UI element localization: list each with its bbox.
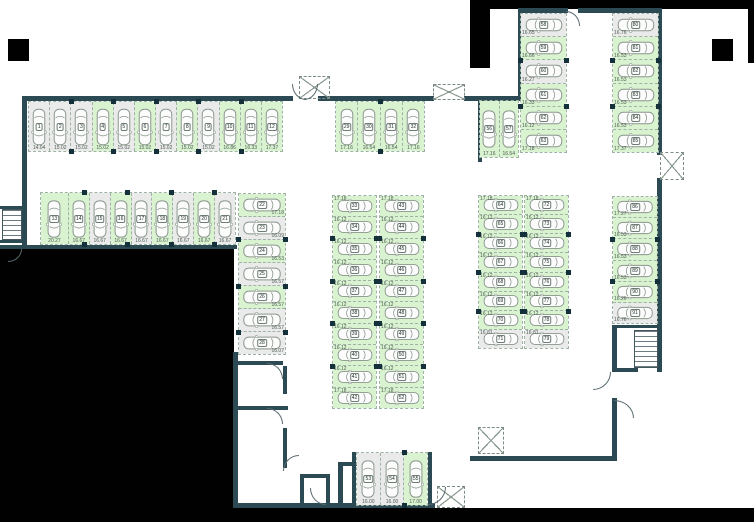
stall-area-label: 16.12 [381,217,394,223]
parking-stall-64[interactable]: 6417.18 [479,196,522,215]
stall-number: 38 [350,309,360,317]
stall-number: 27 [257,316,267,324]
stall-area-label: 16.12 [334,239,347,245]
parking-stall-29[interactable]: 2917.16 [336,102,358,151]
parking-stall-84[interactable]: 8416.53 [613,107,658,130]
stall-area-label: 16.12 [522,123,535,129]
column-pillar [522,270,527,275]
elevator-shaft [660,152,684,180]
stall-area-label: 17.18 [271,210,284,216]
outside-area [748,8,754,63]
parking-stall-62[interactable]: 6216.12 [521,107,566,130]
wall [612,325,660,328]
stall-number: 84 [631,114,641,122]
stall-number: 41 [350,373,360,381]
wall [233,361,283,365]
stall-number: 60 [539,67,549,75]
stall-area-label: 16.12 [526,253,539,259]
parking-stall-38[interactable]: 3816.12 [333,302,376,323]
parking-stall-56[interactable]: 5617.16 [480,101,500,157]
stall-number: 32 [409,123,419,131]
stall-group-col-wing-right: 8016.768116.538216.538316.538416.538517.… [612,13,659,153]
column-pillar [656,58,661,63]
parking-stall-39[interactable]: 3916.12 [333,324,376,345]
stall-number: 16 [116,215,126,223]
parking-stall-5: 515.02 [114,102,135,151]
column-pillar [610,279,615,284]
stall-area-label: 16.86 [220,145,240,151]
parking-stall-40[interactable]: 4016.12 [333,345,376,366]
stall-number: 80 [631,21,641,29]
parking-stall-42[interactable]: 4217.18 [333,388,376,408]
stall-number: 58 [539,21,549,29]
stall-area-label: 17.16 [403,145,424,151]
door-swing [267,363,283,379]
column-pillar [330,236,335,241]
parking-stall-31[interactable]: 3116.54 [381,102,403,151]
parking-stall-17: 1716.67 [132,193,153,244]
stall-area-label: 16.67 [90,238,110,244]
stall-area-label: 17.18 [522,146,535,152]
parking-stall-22[interactable]: 2217.18 [239,194,285,217]
stall-number: 57 [504,125,514,133]
stall-area-label: 16.54 [500,151,519,157]
stall-number: 61 [539,91,549,99]
parking-stall-80: 8016.76 [613,14,658,37]
stall-number: 30 [364,123,374,131]
column-pillar [377,364,382,369]
stall-group-row-second-left: 1320.271416.671516.671616.671716.671816.… [40,192,236,245]
stall-number: 14 [74,215,84,223]
stairs [2,209,22,240]
stall-area-label: 16.27 [522,77,535,83]
parking-stall-74[interactable]: 7416.12 [525,234,568,253]
stall-number: 65 [496,220,506,228]
stall-number: 5 [120,123,127,131]
stall-number: 76 [542,278,552,286]
stall-area-label: 17.18 [526,196,539,202]
stall-number: 78 [542,316,552,324]
stall-area-label: 16.12 [334,366,347,372]
stall-area-label: 16.12 [526,234,539,240]
stall-number: 39 [350,330,360,338]
parking-stall-59[interactable]: 5916.66 [521,37,566,60]
parking-stall-49[interactable]: 4916.12 [380,324,423,345]
parking-stall-75[interactable]: 7516.12 [525,253,568,272]
stall-number: 4 [99,123,106,131]
parking-stall-13[interactable]: 1320.27 [41,193,69,244]
stall-number: 49 [397,330,407,338]
stall-group-col-left: 2217.182316.092416.532516.572616.572716.… [238,193,286,355]
column-pillar [239,99,244,104]
column-pillar [236,237,241,242]
stall-number: 62 [539,114,549,122]
column-pillar [566,309,571,314]
stall-group-row-bottom-center: 5316.005416.005517.00 [356,452,428,506]
column-pillar [330,279,335,284]
stall-area-label: 16.53 [614,275,627,281]
stall-number: 69 [496,297,506,305]
column-pillar [518,58,523,63]
parking-stall-44[interactable]: 4416.12 [380,217,423,238]
stall-number: 2 [57,123,64,131]
parking-stall-20[interactable]: 2016.67 [194,193,215,244]
stall-area-label: 16.12 [526,311,539,317]
stall-number: 46 [397,266,407,274]
parking-stall-36[interactable]: 3616.12 [333,260,376,281]
column-pillar [212,190,217,195]
stall-number: 77 [542,297,552,305]
stall-number: 51 [397,373,407,381]
wall [338,462,343,506]
parking-stall-69[interactable]: 6916.12 [479,292,522,311]
parking-stall-11[interactable]: 1116.33 [241,102,262,151]
parking-stall-87[interactable]: 8716.53 [613,218,657,239]
stall-area-label: 16.76 [614,30,627,36]
parking-stall-85[interactable]: 8517.37 [613,130,658,152]
stall-area-label: 15.02 [156,145,176,151]
stall-number: 22 [257,201,267,209]
column-pillar [169,190,174,195]
stall-number: 15 [95,215,105,223]
stall-number: 79 [542,335,552,343]
parking-stall-82[interactable]: 8216.53 [613,60,658,83]
parking-stall-33[interactable]: 3317.18 [333,196,376,217]
stall-number: 72 [542,201,552,209]
wall [283,366,287,394]
stall-number: 47 [397,287,407,295]
parking-stall-79: 7916.81 [525,330,568,348]
stall-area-label: 17.16 [336,145,357,151]
column-pillar [566,232,571,237]
stall-area-label: 16.07 [271,348,284,354]
stall-number: 26 [257,293,267,301]
stall-area-label: 16.00 [357,499,380,505]
stall-area-label: 16.81 [480,330,493,336]
parking-stall-3: 315.02 [71,102,92,151]
parking-stall-16[interactable]: 1616.67 [111,193,132,244]
column-pillar [421,236,426,241]
stall-number: 54 [387,475,397,483]
stall-number: 66 [496,239,506,247]
parking-stall-76[interactable]: 7616.12 [525,273,568,292]
outside-area [8,39,29,61]
parking-stall-12[interactable]: 1217.37 [262,102,282,151]
stall-number: 11 [246,123,255,131]
stall-area-label: 15.02 [93,145,113,151]
stall-number: 40 [350,351,360,359]
stall-area-label: 17.18 [480,196,493,202]
stall-number: 35 [350,245,360,253]
parking-stall-9: 915.02 [198,102,219,151]
stall-number: 24 [257,247,267,255]
stall-area-label: 16.12 [381,281,394,287]
stall-group-col-mid-b: 4317.184416.124516.124616.124716.124816.… [379,195,424,409]
stall-area-label: 16.12 [526,273,539,279]
parking-stall-52[interactable]: 5217.18 [380,388,423,408]
stall-number: 86 [630,203,640,211]
stall-area-label: 16.12 [480,273,493,279]
stall-number: 36 [350,266,360,274]
stall-area-label: 16.12 [334,302,347,308]
column-pillar [330,321,335,326]
parking-stall-83[interactable]: 8316.53 [613,84,658,107]
stall-number: 42 [350,394,360,402]
parking-stall-6[interactable]: 615.02 [135,102,156,151]
stall-area-label: 16.12 [381,366,394,372]
stall-number: 44 [397,223,407,231]
stall-group-col-right-a: 6417.186516.126616.126716.126816.126916.… [478,195,523,349]
stall-area-label: 16.53 [614,53,627,59]
stall-area-label: 16.65 [522,30,535,36]
parking-stall-78[interactable]: 7816.12 [525,311,568,330]
parking-stall-23: 2316.09 [239,217,285,240]
stall-number: 53 [364,475,374,483]
stall-number: 82 [631,67,641,75]
parking-stall-81[interactable]: 8116.53 [613,37,658,60]
stall-area-label: 16.67 [173,238,193,244]
parking-stall-28: 2816.07 [239,332,285,354]
parking-stall-10[interactable]: 1016.86 [220,102,241,151]
stall-number: 73 [542,220,552,228]
parking-stall-68[interactable]: 6816.12 [479,273,522,292]
door-swing [267,408,283,424]
parking-stall-55[interactable]: 5517.00 [404,453,427,505]
parking-stall-47[interactable]: 4716.12 [380,281,423,302]
parking-stall-61[interactable]: 6116.33 [521,84,566,107]
stall-number: 87 [630,224,640,232]
stall-area-label: 16.12 [334,281,347,287]
stall-area-label: 16.12 [334,324,347,330]
stall-number: 75 [542,258,552,266]
stall-area-label: 16.54 [358,145,379,151]
column-pillar [564,104,569,109]
parking-stall-71: 7116.81 [479,330,522,348]
stall-area-label: 16.57 [271,302,284,308]
stall-area-label: 16.33 [241,145,261,151]
stall-area-label: 16.12 [480,234,493,240]
parking-stall-37[interactable]: 3716.12 [333,281,376,302]
stall-number: 18 [158,215,168,223]
stall-area-label: 16.12 [334,217,347,223]
parking-stall-86[interactable]: 8617.27 [613,197,657,218]
wall [470,456,617,461]
parking-stall-90[interactable]: 9016.26 [613,282,657,303]
stall-number: 23 [257,224,267,232]
parking-stall-63[interactable]: 6317.18 [521,130,566,152]
stall-area-label: 16.12 [381,324,394,330]
stall-area-label: 16.33 [522,100,535,106]
column-pillar [82,242,87,247]
stall-area-label: 17.18 [334,388,347,394]
stall-area-label: 16.12 [381,345,394,351]
parking-stall-19: 1916.67 [173,193,194,244]
parking-stall-2: 215.02 [50,102,71,151]
parking-stall-30[interactable]: 3016.54 [358,102,380,151]
stall-number: 37 [350,287,360,295]
outside-area [470,0,490,68]
parking-stall-26[interactable]: 2616.57 [239,286,285,309]
stall-group-row-mid-top: 2917.163016.543116.543217.16 [335,101,425,152]
stall-number: 81 [631,44,641,52]
stall-area-label: 17.18 [381,196,394,202]
parking-stall-34[interactable]: 3416.12 [333,217,376,238]
stall-area-label: 15.02 [114,145,134,151]
stall-area-label: 16.12 [334,345,347,351]
stall-number: 43 [397,202,407,210]
parking-stall-54: 5416.00 [381,453,405,505]
stall-number: 9 [205,123,212,131]
stall-area-label: 16.67 [132,238,152,244]
stall-number: 29 [342,123,352,131]
stall-number: 88 [630,245,640,253]
stall-group-col-wing-left: 5816.655916.666016.276116.336216.126317.… [520,13,567,153]
elevator-shaft [478,427,504,454]
outside-area [0,249,234,522]
column-pillar [82,190,87,195]
door-swing [614,400,634,418]
stall-area-label: 16.53 [271,256,284,262]
door-swing [566,11,580,26]
stall-area-label: 15.02 [198,145,218,151]
column-pillar [518,104,523,109]
column-pillar [421,321,426,326]
column-pillar [402,503,407,508]
column-pillar [655,237,660,242]
column-pillar [69,99,74,104]
column-pillar [564,58,569,63]
stall-number: 56 [484,125,494,133]
stall-area-label: 17.37 [262,145,282,151]
parking-stall-8[interactable]: 815.02 [177,102,198,151]
stall-number: 13 [50,215,60,223]
stall-area-label: 17.18 [334,196,347,202]
stall-number: 89 [630,267,640,275]
parking-stall-25: 2516.57 [239,263,285,286]
wall [612,325,617,372]
wall [326,474,330,507]
outside-area [0,508,754,522]
stall-group-pair-top-right: 5617.165716.54 [479,100,519,158]
stall-number: 83 [631,91,641,99]
stall-number: 20 [199,215,209,223]
stall-area-label: 16.12 [480,215,493,221]
stall-area-label: 16.81 [526,330,539,336]
parking-stall-51[interactable]: 5116.12 [380,366,423,387]
parking-stall-65[interactable]: 6516.12 [479,215,522,234]
stall-number: 7 [163,123,170,131]
stall-area-label: 15.02 [177,145,197,151]
parking-stall-66[interactable]: 6616.12 [479,234,522,253]
stall-area-label: 16.12 [480,292,493,298]
column-pillar [656,104,661,109]
parking-stall-67[interactable]: 6716.12 [479,253,522,272]
column-pillar [566,270,571,275]
parking-stall-43[interactable]: 4317.18 [380,196,423,217]
column-pillar [330,364,335,369]
column-pillar [421,279,426,284]
stall-number: 68 [496,278,506,286]
column-pillar [378,149,383,154]
stall-area-label: 16.12 [526,215,539,221]
column-pillar [402,450,407,455]
column-pillar [169,242,174,247]
stall-number: 33 [350,202,360,210]
stall-number: 85 [631,137,641,145]
column-pillar [111,99,116,104]
parking-stall-14[interactable]: 1416.67 [69,193,90,244]
stall-number: 3 [78,123,85,131]
parking-stall-24[interactable]: 2416.53 [239,240,285,263]
stall-area-label: 16.12 [480,253,493,259]
parking-stall-27: 2716.57 [239,309,285,332]
stall-group-col-right-b: 7217.187316.127416.127516.127616.127716.… [524,195,569,349]
stall-area-label: 15.02 [71,145,91,151]
column-pillar [236,330,241,335]
stall-number: 74 [542,239,552,247]
column-pillar [476,270,481,275]
stall-number: 28 [257,339,267,347]
parking-stall-48[interactable]: 4816.12 [380,302,423,323]
stall-area-label: 14.04 [29,145,49,151]
column-pillar [239,149,244,154]
wall [233,406,288,410]
parking-stall-58: 5816.65 [521,14,566,37]
parking-stall-45[interactable]: 4516.12 [380,239,423,260]
stall-number: 12 [267,123,277,131]
column-pillar [610,104,615,109]
parking-garage-floor-plan: 114.04215.02315.02415.02515.02615.02715.… [0,0,754,522]
parking-stall-72[interactable]: 7217.18 [525,196,568,215]
parking-stall-57[interactable]: 5716.54 [500,101,519,157]
stall-number: 67 [496,258,506,266]
stall-area-label: 16.53 [614,254,627,260]
column-pillar [655,279,660,284]
stall-number: 31 [386,123,396,131]
parking-stall-35[interactable]: 3516.12 [333,239,376,260]
parking-stall-18[interactable]: 1816.67 [152,193,173,244]
stall-area-label: 16.54 [381,145,402,151]
stall-number: 55 [411,475,421,483]
wall [233,352,238,508]
parking-stall-60: 6016.27 [521,60,566,83]
parking-stall-41[interactable]: 4116.12 [333,366,376,387]
parking-stall-4[interactable]: 415.02 [93,102,114,151]
parking-stall-32[interactable]: 3217.16 [403,102,424,151]
stall-area-label: 16.12 [526,292,539,298]
stall-area-label: 16.53 [614,123,627,129]
parking-stall-88[interactable]: 8816.53 [613,239,657,260]
stall-number: 10 [225,123,235,131]
stall-number: 21 [220,215,230,223]
stall-area-label: 16.67 [194,238,214,244]
parking-stall-73[interactable]: 7316.12 [525,215,568,234]
stall-number: 48 [397,309,407,317]
parking-stall-77[interactable]: 7716.12 [525,292,568,311]
column-pillar [69,149,74,154]
column-pillar [522,232,527,237]
outside-area [712,39,733,61]
parking-stall-46[interactable]: 4616.12 [380,260,423,281]
stall-area-label: 16.76 [614,317,627,323]
parking-stall-50[interactable]: 5016.12 [380,345,423,366]
parking-stall-70[interactable]: 7016.12 [479,311,522,330]
stall-number: 17 [137,215,147,223]
stairs [634,330,658,368]
stall-area-label: 17.18 [381,388,394,394]
parking-stall-89[interactable]: 8916.53 [613,261,657,282]
stall-area-label: 17.37 [614,146,627,152]
